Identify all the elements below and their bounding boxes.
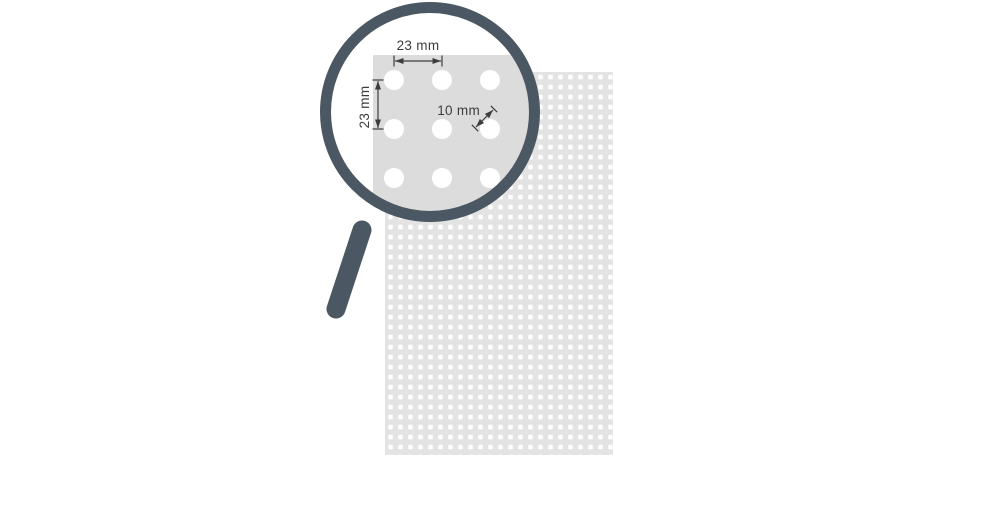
- hole: [384, 168, 404, 188]
- hole: [432, 168, 452, 188]
- hole: [480, 70, 500, 90]
- illustration-stage: 23 mm 23 mm 10 mm: [0, 0, 1000, 532]
- hole: [384, 119, 404, 139]
- horizontal-pitch-label: 23 mm: [397, 38, 440, 53]
- magnifier-handle: [336, 230, 362, 309]
- hole-diameter-label: 10 mm: [437, 103, 480, 118]
- hole: [480, 119, 500, 139]
- hole: [432, 119, 452, 139]
- hole: [384, 70, 404, 90]
- perforated-sheet-diagram: 23 mm 23 mm 10 mm: [0, 0, 1000, 532]
- vertical-pitch-label: 23 mm: [357, 86, 372, 129]
- hole: [432, 70, 452, 90]
